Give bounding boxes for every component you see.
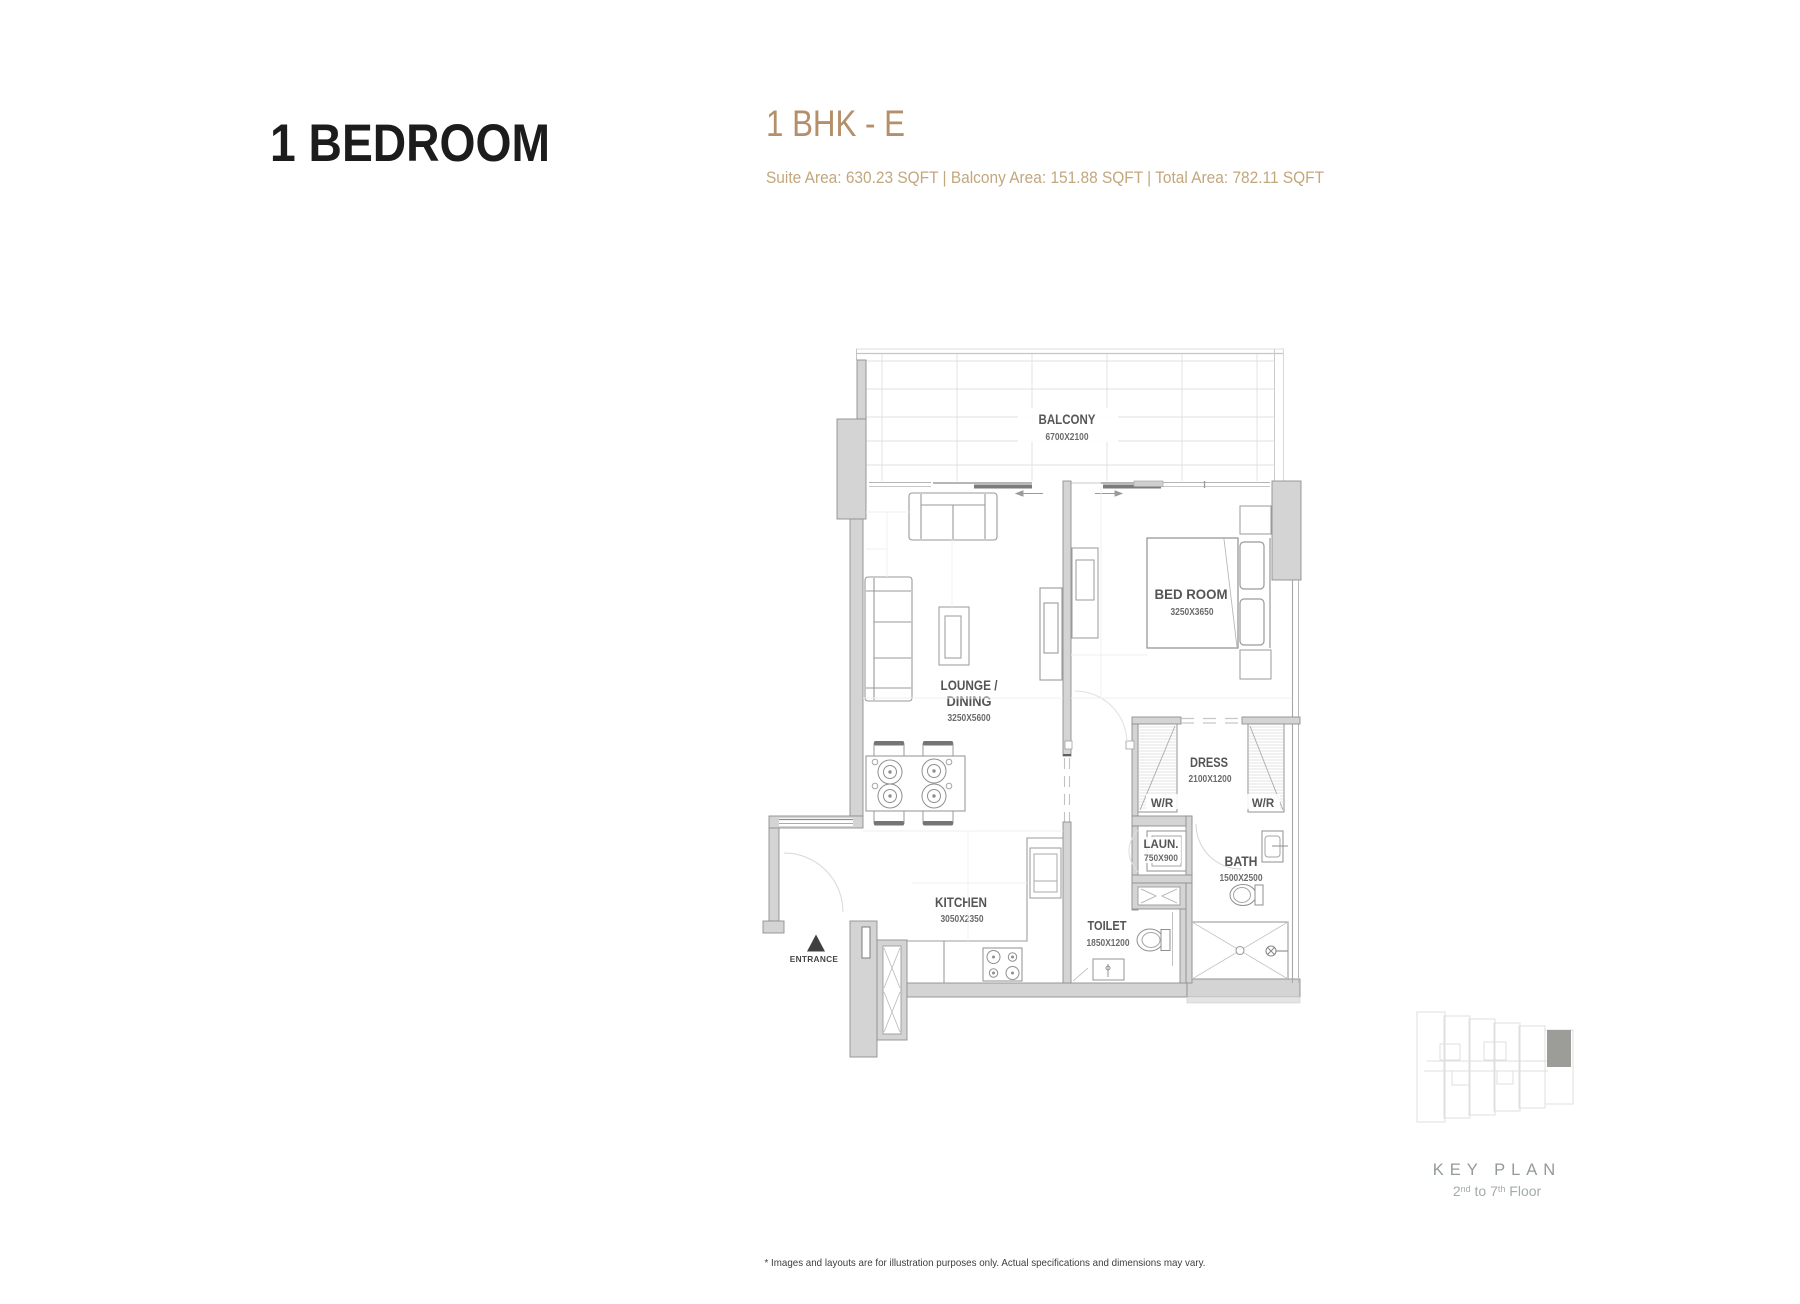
- svg-text:LOUNGE /: LOUNGE /: [941, 678, 998, 693]
- svg-text:3250X3650: 3250X3650: [1171, 607, 1214, 618]
- svg-text:3050X2350: 3050X2350: [941, 914, 984, 925]
- svg-text:BED ROOM: BED ROOM: [1155, 587, 1228, 602]
- svg-text:W/R: W/R: [1151, 798, 1174, 810]
- svg-text:1 BEDROOM: 1 BEDROOM: [270, 114, 550, 173]
- svg-text:1500X2500: 1500X2500: [1220, 873, 1263, 884]
- svg-text:ENTRANCE: ENTRANCE: [790, 954, 839, 964]
- svg-text:* Images and layouts are for i: * Images and layouts are for illustratio…: [765, 1257, 1206, 1269]
- svg-text:LAUN.: LAUN.: [1144, 839, 1179, 851]
- svg-text:1 BHK - E: 1 BHK - E: [766, 103, 905, 144]
- svg-text:BALCONY: BALCONY: [1039, 412, 1096, 427]
- svg-text:3250X5600: 3250X5600: [948, 713, 991, 724]
- svg-text:750X900: 750X900: [1144, 853, 1178, 864]
- svg-text:1850X1200: 1850X1200: [1087, 938, 1130, 949]
- svg-text:TOILET: TOILET: [1088, 918, 1127, 933]
- svg-text:DRESS: DRESS: [1190, 755, 1228, 770]
- svg-text:BATH: BATH: [1225, 854, 1258, 869]
- svg-text:6700X2100: 6700X2100: [1046, 432, 1089, 443]
- svg-text:W/R: W/R: [1252, 798, 1275, 810]
- svg-text:2100X1200: 2100X1200: [1189, 774, 1232, 785]
- svg-text:Suite Area: 630.23 SQFT | Balc: Suite Area: 630.23 SQFT | Balcony Area: …: [766, 169, 1324, 187]
- svg-text:KEY PLAN: KEY PLAN: [1433, 1161, 1561, 1179]
- svg-text:DINING: DINING: [947, 694, 992, 709]
- svg-text:KITCHEN: KITCHEN: [935, 895, 987, 910]
